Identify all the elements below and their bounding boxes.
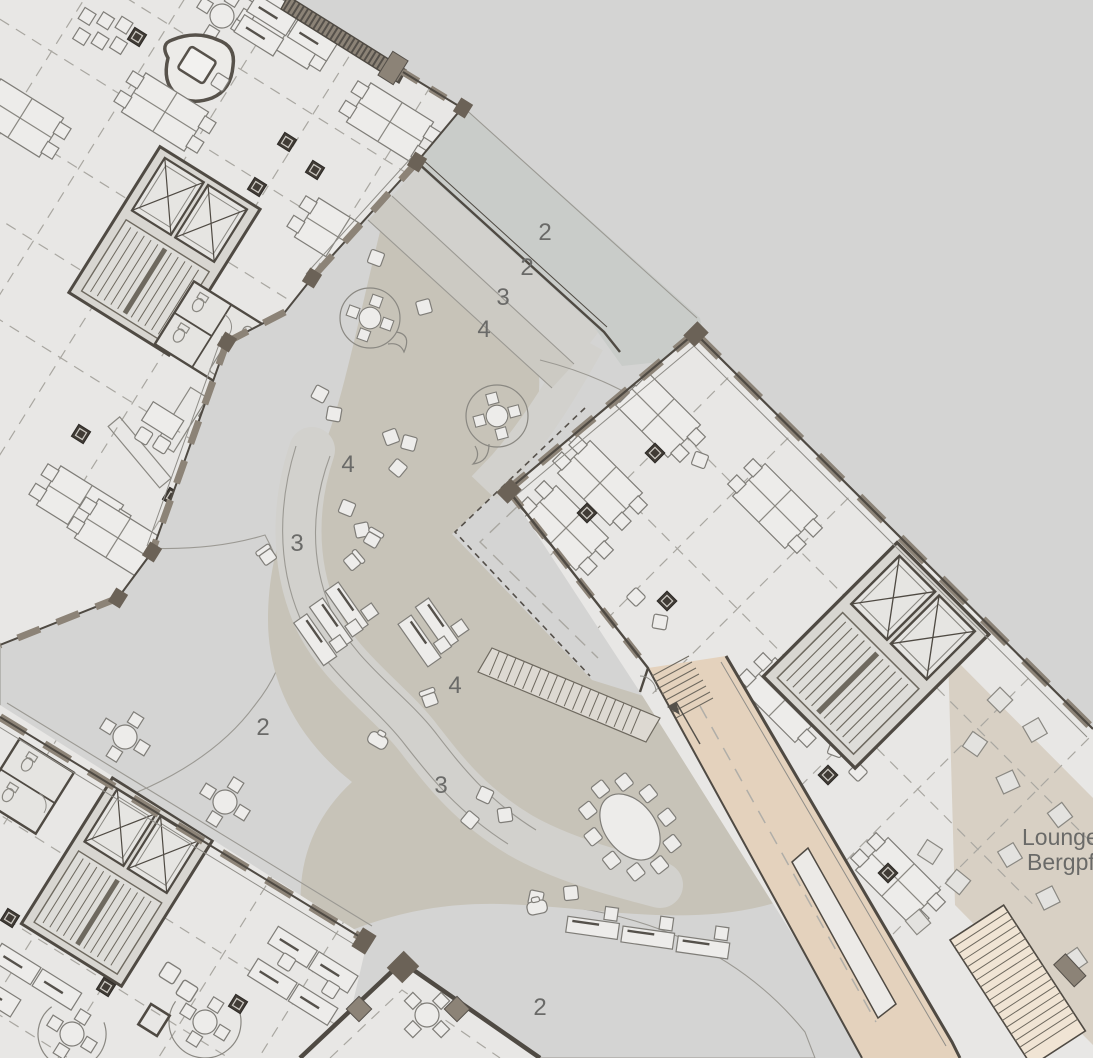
chair (652, 614, 668, 630)
zone-label: 4 (448, 672, 461, 699)
zone-label: 2 (538, 219, 551, 246)
zone-label: 2 (256, 714, 269, 741)
floor-plan-page: 2 2 3 4 4 3 4 2 3 2 Lounge Bergpf (0, 0, 1093, 1058)
lounge-label-line2: Bergpf (1027, 849, 1093, 875)
zone-label: 4 (341, 451, 354, 478)
zone-label: 3 (434, 772, 447, 799)
zone-label: 2 (520, 254, 533, 281)
lounge-label: Lounge Bergpf (1022, 824, 1093, 875)
zone-label: 3 (496, 284, 509, 311)
lounge-label-line1: Lounge (1022, 824, 1093, 850)
floor-plan-canvas: 2 2 3 4 4 3 4 2 3 2 Lounge Bergpf (0, 0, 1093, 1058)
zone-label: 2 (533, 994, 546, 1021)
zone-label: 3 (290, 530, 303, 557)
zone-label: 4 (477, 316, 490, 343)
